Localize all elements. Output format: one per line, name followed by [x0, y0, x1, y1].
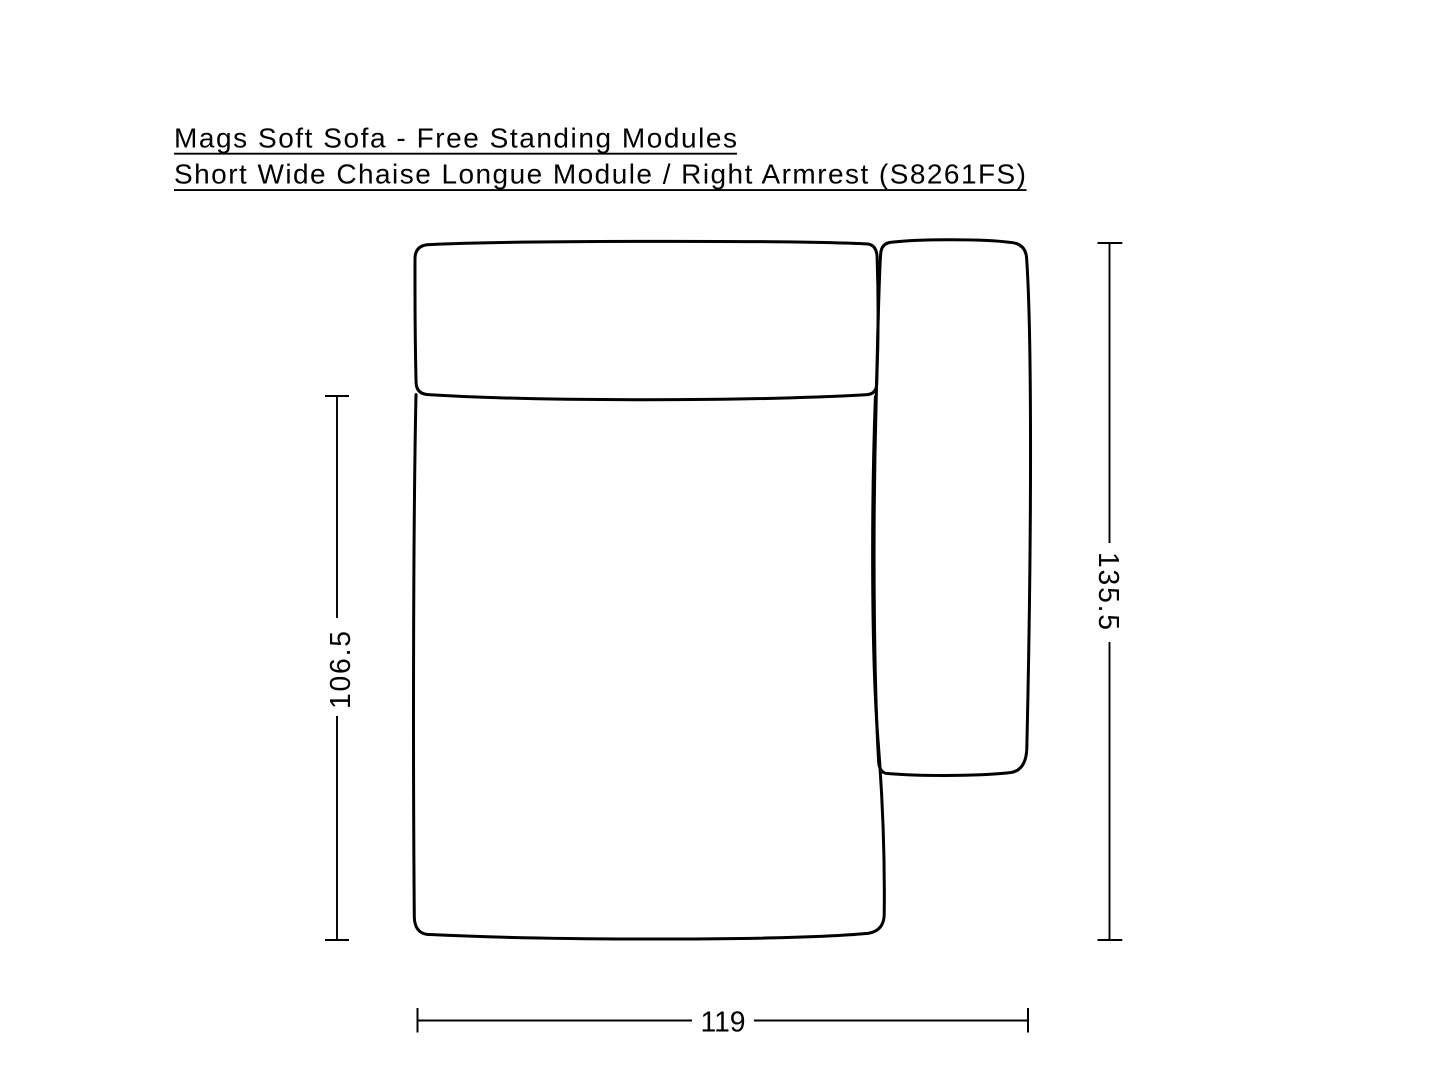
svg-text:Mags Soft Sofa - Free Standing: Mags Soft Sofa - Free Standing Modules — [174, 123, 737, 154]
svg-text:135.5: 135.5 — [1093, 552, 1125, 630]
svg-text:119: 119 — [700, 1005, 745, 1037]
svg-text:106.5: 106.5 — [324, 631, 356, 709]
svg-text:Short Wide Chaise Longue Modul: Short Wide Chaise Longue Module / Right … — [174, 159, 1026, 190]
